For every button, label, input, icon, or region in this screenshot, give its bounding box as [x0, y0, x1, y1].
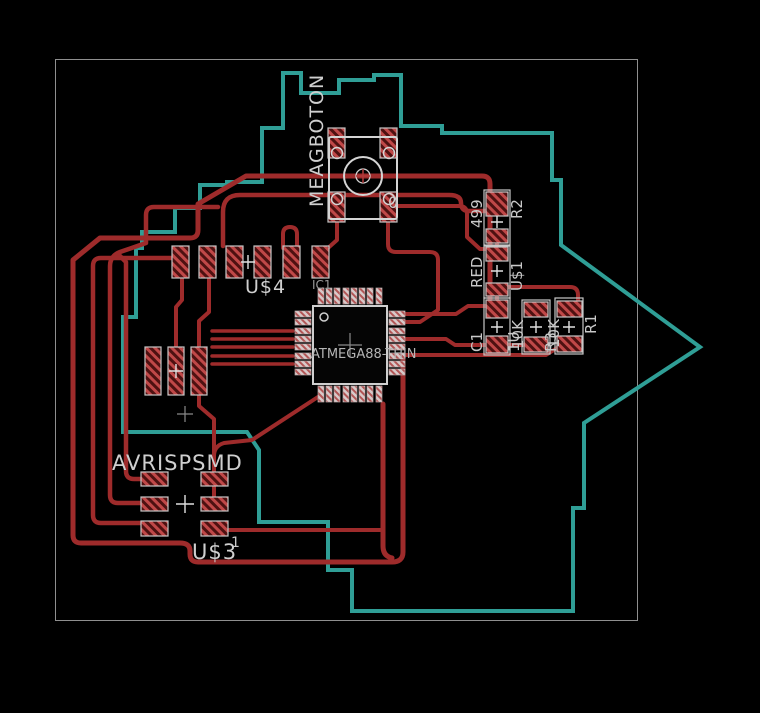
button-left-trace[interactable]: [328, 221, 337, 248]
r1-value-label: 10K: [545, 318, 563, 348]
smd-pad[interactable]: [172, 246, 189, 278]
ic1-pad[interactable]: [389, 311, 405, 317]
smd-pad[interactable]: [486, 229, 508, 243]
ic1-pad[interactable]: [343, 288, 349, 304]
isp-ic-diagonal-trace[interactable]: [214, 395, 321, 497]
ic1-pad[interactable]: [295, 328, 311, 334]
ic1-pad[interactable]: [389, 319, 405, 325]
button-right-trace[interactable]: [388, 221, 438, 322]
r3-value-label: 10K: [509, 319, 527, 349]
ic1-pad[interactable]: [318, 386, 324, 402]
ic1-pad[interactable]: [295, 369, 311, 375]
u3-pin1-label: 1: [231, 535, 240, 551]
smd-pad[interactable]: [524, 302, 548, 317]
power-wrap-branch-trace[interactable]: [383, 404, 392, 558]
r2-name-label: R2: [508, 199, 526, 219]
led-origin-cross: [491, 265, 503, 277]
r3-origin-cross: [530, 321, 542, 333]
ic1-pad[interactable]: [295, 311, 311, 317]
smd-pad[interactable]: [141, 521, 168, 536]
smd-pad[interactable]: [283, 246, 300, 278]
ic1-pad[interactable]: [367, 386, 373, 402]
smd-pad[interactable]: [486, 283, 508, 296]
ic1-pad[interactable]: [389, 328, 405, 334]
ic-value-label: ATMEGA88-THIN: [311, 347, 417, 362]
smd-pad[interactable]: [486, 247, 508, 261]
smd-pad[interactable]: [312, 246, 329, 278]
led-value-label: RED: [468, 257, 486, 288]
smd-pad[interactable]: [201, 497, 228, 511]
ic1-pad[interactable]: [367, 288, 373, 304]
ic1-pad[interactable]: [295, 319, 311, 325]
ic1-pad[interactable]: [389, 336, 405, 342]
component-ic1[interactable]: [295, 288, 405, 402]
ic1-pad[interactable]: [334, 386, 340, 402]
u4-header-trace-1[interactable]: [176, 278, 182, 348]
ic1-pad[interactable]: [343, 386, 349, 402]
ic1-pad[interactable]: [295, 361, 311, 367]
r2-value-label: 499: [468, 199, 486, 228]
ic1-pad[interactable]: [376, 288, 382, 304]
ic1-pad[interactable]: [295, 353, 311, 359]
ic1-pad[interactable]: [295, 336, 311, 342]
signal-trace-h2[interactable]: [223, 195, 487, 246]
u3-origin-cross: [176, 495, 194, 513]
ic1-pad[interactable]: [359, 288, 365, 304]
u4-header-trace-2[interactable]: [199, 278, 209, 348]
button-name-label: MEAGBOTON: [306, 74, 328, 207]
button-value-label: 0: [388, 193, 398, 212]
smd-pad[interactable]: [486, 192, 508, 216]
ic1-pad[interactable]: [389, 369, 405, 375]
c1-origin-cross: [491, 321, 503, 333]
header-ic-bundle-traces[interactable]: [212, 331, 293, 364]
smd-pad[interactable]: [141, 497, 168, 511]
ic1-pad[interactable]: [334, 288, 340, 304]
ic1-pad[interactable]: [295, 344, 311, 350]
ic1-pad[interactable]: [376, 386, 382, 402]
smd-pad[interactable]: [226, 246, 243, 278]
smd-pad[interactable]: [201, 521, 228, 536]
free-origin-cross: [177, 406, 193, 422]
c1-name-label: C1: [468, 332, 486, 352]
r1-origin-cross: [563, 321, 575, 333]
smd-pad[interactable]: [254, 246, 271, 278]
ic1-pad[interactable]: [359, 386, 365, 402]
ic-fan-trace-1[interactable]: [405, 306, 487, 314]
led-name-label: U$1: [508, 261, 526, 291]
pcb-editor-canvas[interactable]: MEAGBOTON 0 499 R2 RED U$1 C1 1U 10K R3 …: [0, 0, 760, 713]
smd-pad[interactable]: [486, 300, 508, 318]
u4-name-label: U$4: [245, 276, 286, 298]
board-drawing[interactable]: MEAGBOTON 0 499 R2 RED U$1 C1 1U 10K R3 …: [0, 0, 760, 713]
ic1-pad[interactable]: [326, 386, 332, 402]
ic1-pad[interactable]: [351, 288, 357, 304]
r1-name-label: R1: [582, 314, 600, 334]
smd-pad[interactable]: [191, 347, 207, 395]
r2-origin-cross: [491, 216, 503, 228]
smd-pad[interactable]: [199, 246, 216, 278]
isp-name-label: AVRISPSMD: [112, 451, 243, 475]
ic1-pad[interactable]: [351, 386, 357, 402]
smd-pad[interactable]: [557, 301, 582, 317]
smd-pad[interactable]: [145, 347, 161, 395]
ic-name-label: IC1: [312, 278, 332, 292]
u4-hook-trace[interactable]: [283, 227, 297, 248]
